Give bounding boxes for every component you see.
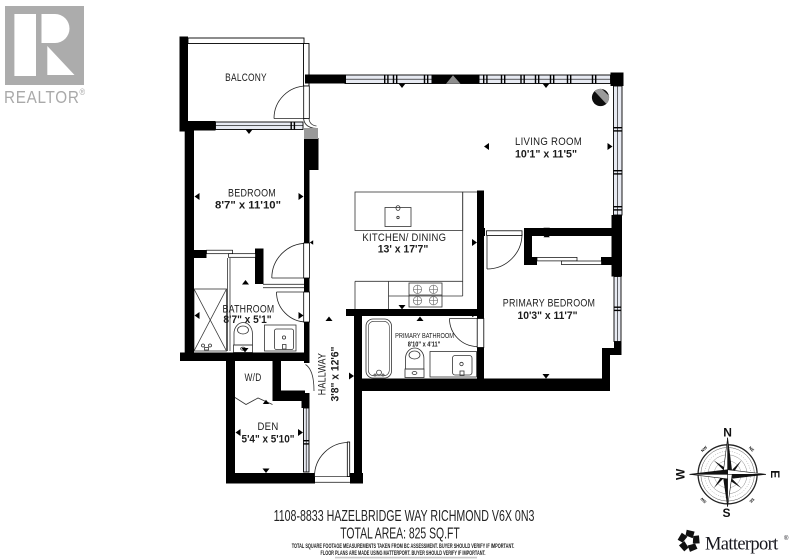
svg-text:W/D: W/D [245,372,262,384]
svg-text:TOTAL AREA: 825 SQ.FT: TOTAL AREA: 825 SQ.FT [340,524,459,542]
svg-text:10'1" x 11'5": 10'1" x 11'5" [515,148,577,160]
svg-text:HALLWAY: HALLWAY [317,353,329,395]
svg-text:BALCONY: BALCONY [225,72,267,84]
svg-text:BEDROOM: BEDROOM [228,188,276,200]
svg-text:5'4" x 5'10": 5'4" x 5'10" [242,434,295,446]
svg-text:E: E [768,470,782,478]
svg-text:8'7" x 5'1": 8'7" x 5'1" [223,313,271,325]
svg-text:Matterport: Matterport [705,535,779,555]
svg-text:N: N [723,426,732,440]
svg-text:W: W [674,468,688,480]
svg-text:1108-8833 HAZELBRIDGE WAY RICH: 1108-8833 HAZELBRIDGE WAY RICHMOND V6X 0… [274,507,535,524]
svg-text:8'7" x 11'10": 8'7" x 11'10" [215,200,281,212]
svg-text:REALTOR®: REALTOR® [4,86,86,107]
svg-text:DEN: DEN [258,421,279,433]
svg-text:PRIMARY BATHROOM: PRIMARY BATHROOM [395,332,454,340]
svg-text:LIVING ROOM: LIVING ROOM [515,136,582,148]
svg-text:3'8" x 12'6": 3'8" x 12'6" [329,347,341,402]
svg-text:S: S [722,506,730,520]
svg-text:PRIMARY BEDROOM: PRIMARY BEDROOM [503,298,595,310]
svg-text:8'10" x 4'11": 8'10" x 4'11" [408,341,441,349]
svg-text:®: ® [784,535,789,542]
svg-text:13' x 17'7": 13' x 17'7" [378,243,429,255]
svg-text:10'3" x 11'7": 10'3" x 11'7" [518,310,578,322]
svg-text:FLOOR PLANS ARE MADE USING MAT: FLOOR PLANS ARE MADE USING MATTERPORT. B… [321,550,486,557]
